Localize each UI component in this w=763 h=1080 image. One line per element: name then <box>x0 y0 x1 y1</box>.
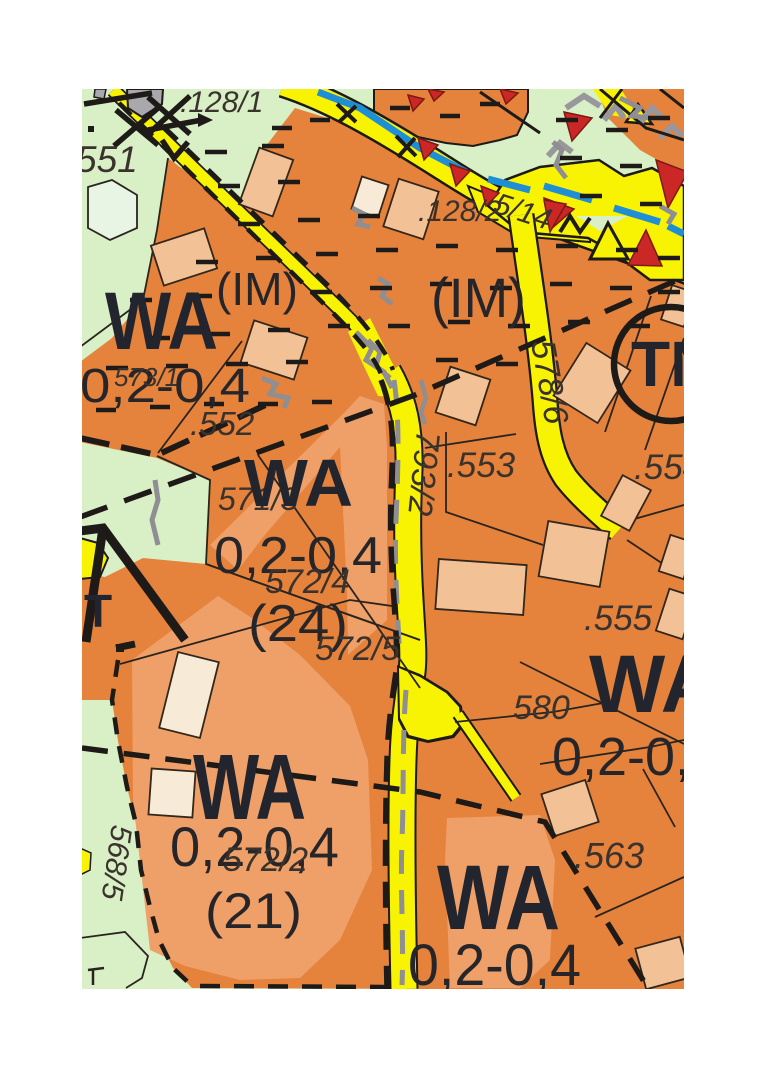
svg-text:0,2-0,4: 0,2-0,4 <box>552 727 720 787</box>
svg-text:.554: .554 <box>634 448 702 487</box>
svg-text:572/5: 572/5 <box>315 630 400 668</box>
svg-text:580: 580 <box>513 689 570 727</box>
svg-text:573/1: 573/1 <box>114 362 179 392</box>
svg-text:WA: WA <box>589 639 719 730</box>
svg-text:T: T <box>84 585 112 637</box>
svg-text:.128/2: .128/2 <box>418 195 502 228</box>
svg-text:WA: WA <box>244 446 353 521</box>
svg-text:(IM): (IM) <box>216 263 298 315</box>
svg-text:(IM): (IM) <box>431 266 526 329</box>
svg-text:0,2-0,4: 0,2-0,4 <box>408 933 581 998</box>
svg-text:(21): (21) <box>205 883 302 939</box>
svg-text:.128/1: .128/1 <box>180 86 263 119</box>
svg-text:.555: .555 <box>584 599 653 638</box>
svg-text:TN: TN <box>631 328 716 400</box>
svg-text:572/2: 572/2 <box>223 841 308 879</box>
svg-text:WA: WA <box>105 276 218 367</box>
svg-text:551: 551 <box>76 139 138 180</box>
svg-text:.552: .552 <box>190 405 254 442</box>
svg-text:.553: .553 <box>447 446 516 485</box>
svg-text:.563: .563 <box>574 835 644 876</box>
